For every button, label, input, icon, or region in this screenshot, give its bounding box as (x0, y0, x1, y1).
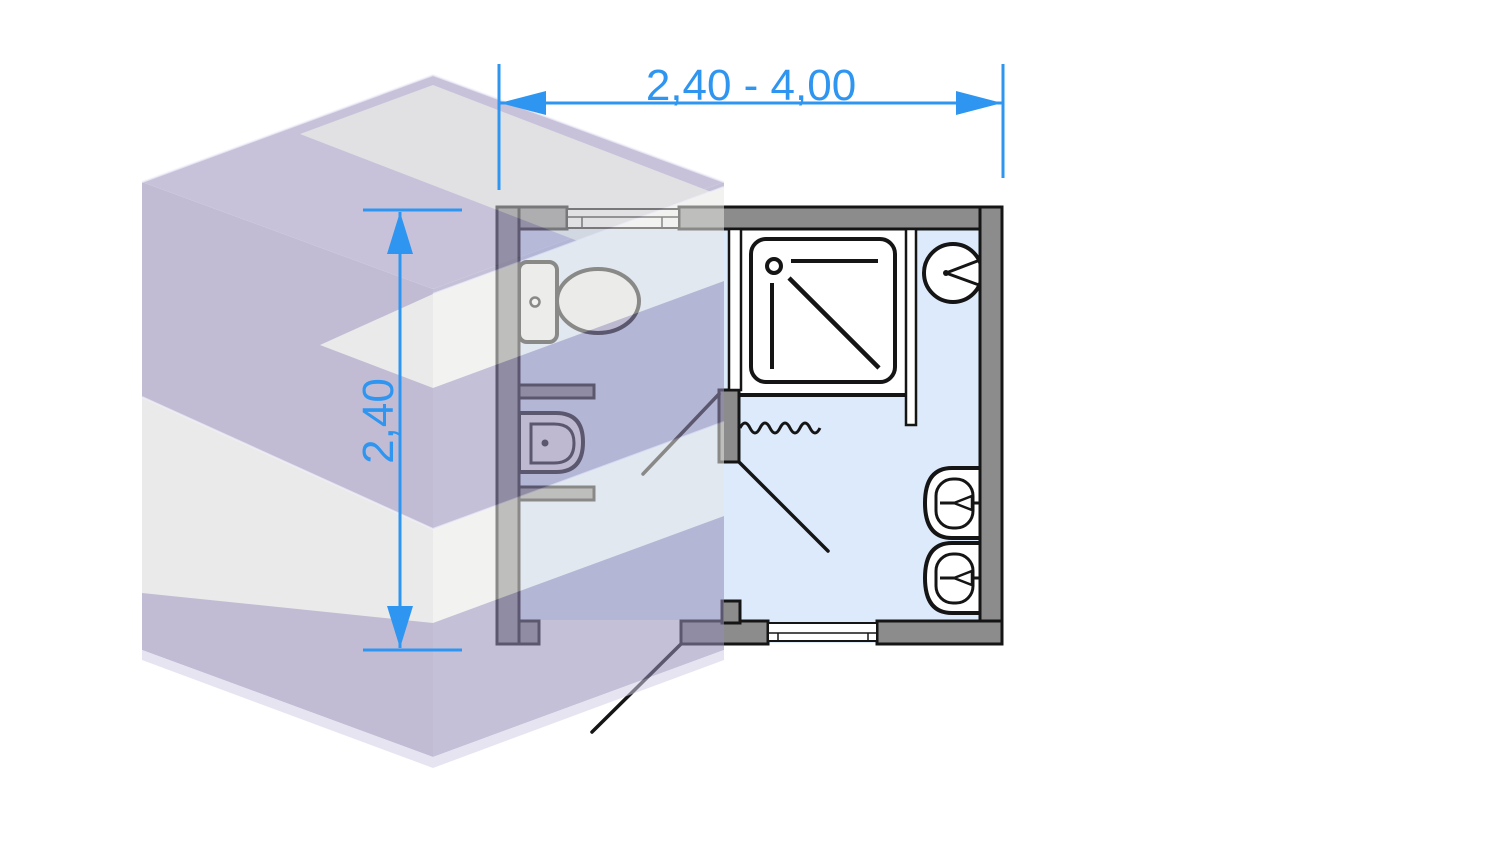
shower-tray-icon (738, 227, 907, 395)
washbasin-icon (925, 468, 987, 538)
partition-shower-right (906, 229, 916, 425)
window-icon (768, 623, 877, 641)
wall-top-right (679, 207, 1002, 229)
height-dimension-label: 2,40 (354, 378, 403, 464)
washbasin-icon (925, 543, 987, 613)
arrow-right-icon (956, 91, 1002, 115)
width-dimension-label: 2,40 - 4,00 (646, 61, 856, 110)
partition-shower-left (729, 229, 741, 390)
wall-right (980, 207, 1002, 644)
wall-bottom-stub (722, 601, 740, 623)
iso-cube (142, 75, 724, 768)
wall-bottom-b (877, 621, 1002, 644)
bathroom-plan-diagram: 2,40 - 4,00 2,40 (0, 0, 1500, 844)
